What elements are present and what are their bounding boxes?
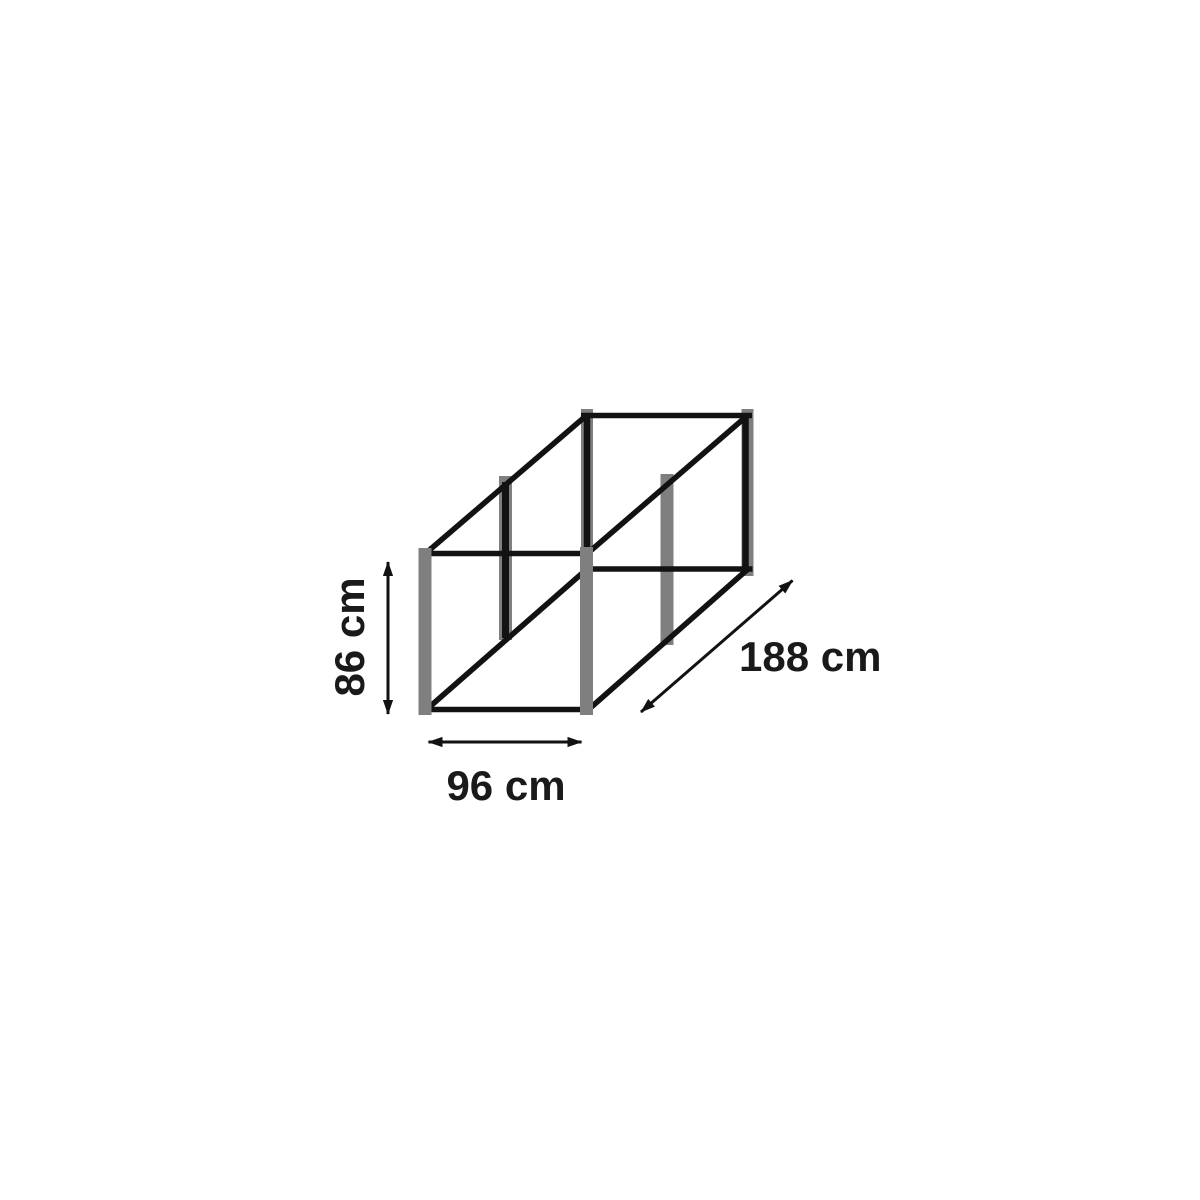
height-dimension-label: 86 cm [326, 577, 373, 696]
width-dimension-label: 96 cm [446, 762, 565, 809]
diagram-canvas: 86 cm 96 cm 188 cm [0, 0, 1200, 1200]
frame-dimension-diagram: 86 cm 96 cm 188 cm [0, 0, 1200, 1200]
post-middle-right [661, 474, 674, 645]
post-front-right [580, 547, 593, 715]
depth-dimension-label: 188 cm [739, 633, 881, 680]
post-front-left [419, 548, 432, 715]
